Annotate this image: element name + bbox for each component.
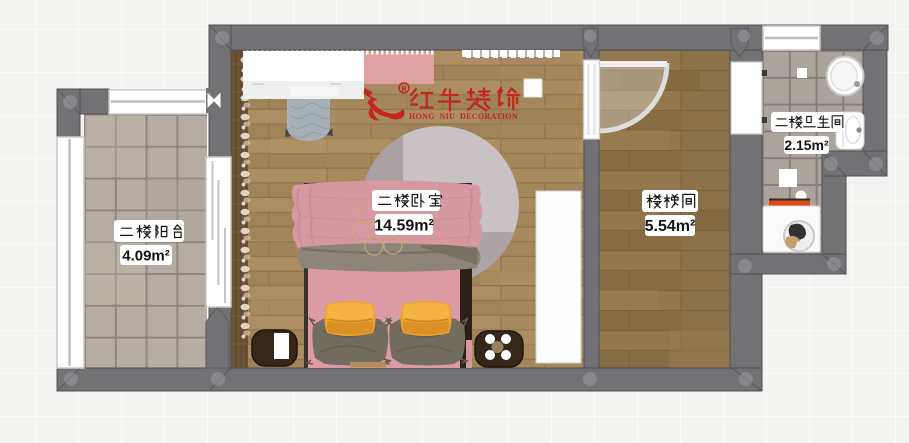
svg-text:HONG NIU DECORATION: HONG NIU DECORATION — [409, 112, 518, 121]
svg-text:R: R — [401, 85, 407, 94]
svg-text:2.15m²: 2.15m² — [784, 137, 829, 153]
svg-text:5.54m²: 5.54m² — [645, 218, 696, 235]
svg-text:14.59m²: 14.59m² — [374, 218, 434, 235]
svg-text:4.09m²: 4.09m² — [122, 248, 170, 265]
